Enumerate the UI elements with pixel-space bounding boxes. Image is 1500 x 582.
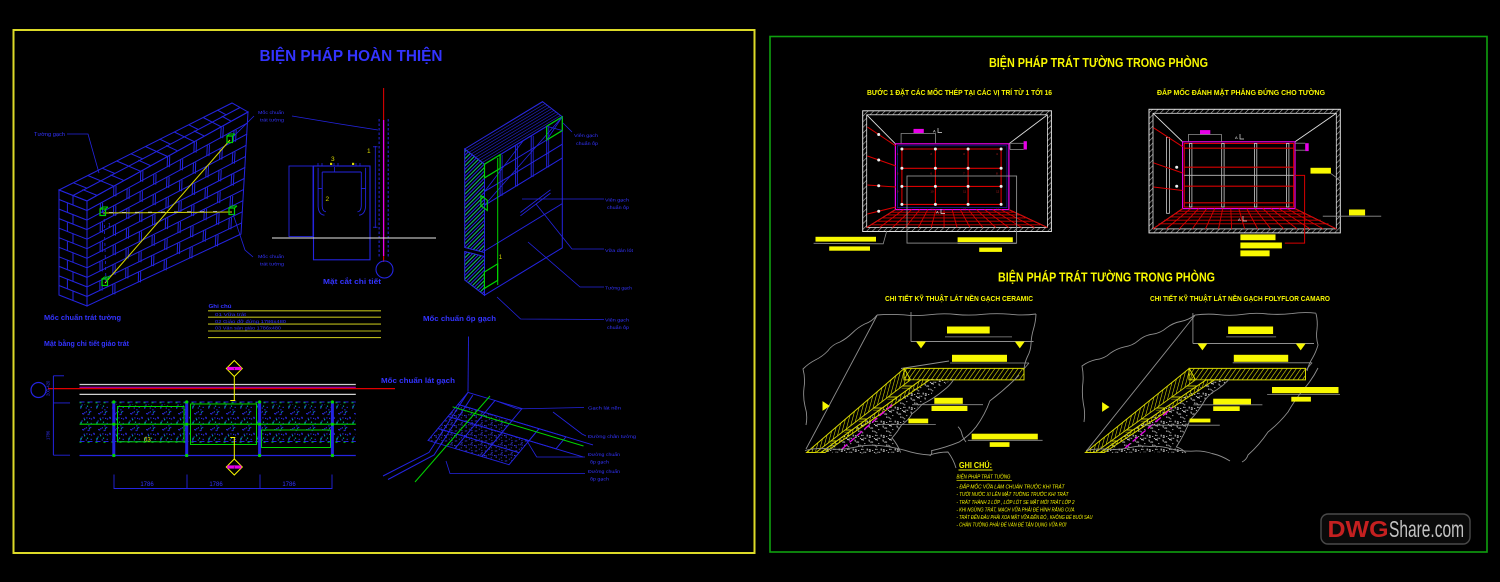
svg-text:trát tường: trát tường [260,118,284,124]
svg-text:BIỆN PHÁP HOÀN THIỆN: BIỆN PHÁP HOÀN THIỆN [260,47,443,65]
svg-text:1: 1 [367,148,371,155]
svg-text:BIỆN PHÁP TRÁT TƯỜNG: BIỆN PHÁP TRÁT TƯỜNG [957,473,1012,481]
svg-text:- TRÁT THÀNH 2 LỚP , LỚP LÓT S: - TRÁT THÀNH 2 LỚP , LỚP LÓT SE MẶT MỚI … [957,499,1075,506]
svg-text:A: A [933,129,936,134]
svg-text:Đường chuẩn: Đường chuẩn [588,451,620,458]
svg-text:Share.com: Share.com [1389,516,1464,542]
svg-text:CHI TIẾT KỸ THUẬT LÁT NỀN GẠCH: CHI TIẾT KỸ THUẬT LÁT NỀN GẠCH FOLYFLOR … [1150,293,1331,303]
svg-text:3: 3 [331,156,335,163]
svg-text:03: 03 [144,438,151,444]
svg-text:Mốc chuẩn trát tường: Mốc chuẩn trát tường [44,314,121,322]
svg-text:9: 9 [897,189,899,193]
svg-text:Tường gạch: Tường gạch [34,132,65,138]
svg-text:ốp gạch: ốp gạch [590,460,609,466]
svg-text:chuẩn ốp: chuẩn ốp [576,140,598,147]
svg-text:6: 6 [930,171,932,175]
svg-text:1: 1 [897,152,899,156]
svg-text:trát tường: trát tường [260,262,284,268]
svg-text:03 Ván sàn giáo 1786x480: 03 Ván sàn giáo 1786x480 [215,326,282,331]
svg-text:Mặt cắt chi tiết: Mặt cắt chi tiết [323,277,382,286]
svg-text:Mốc chuẩn: Mốc chuẩn [258,109,284,116]
svg-text:13: 13 [897,207,901,211]
svg-text:Đường chân tường: Đường chân tường [588,434,636,440]
svg-text:7: 7 [963,171,965,175]
svg-text:BƯỚC 1 ĐẶT CÁC MỐC THÉP TẠI CÁ: BƯỚC 1 ĐẶT CÁC MỐC THÉP TẠI CÁC VỊ TRÍ T… [867,87,1052,97]
svg-text:BIỆN PHÁP TRÁT TƯỜNG TRONG PHÒ: BIỆN PHÁP TRÁT TƯỜNG TRONG PHÒNG [998,270,1215,285]
svg-text:Mặt bằng chi tiết giáo trát: Mặt bằng chi tiết giáo trát [44,339,130,348]
svg-text:Mốc chuẩn: Mốc chuẩn [258,253,284,260]
svg-text:Viên gạch: Viên gạch [605,318,629,324]
svg-text:3: 3 [963,152,965,156]
svg-text:1: 1 [108,223,111,229]
svg-text:12: 12 [996,189,1000,193]
svg-text:A: A [1238,217,1241,222]
svg-text:Ghi chú: Ghi chú [209,304,232,310]
svg-text:02 Giáo đỡ đứng 1786x480: 02 Giáo đỡ đứng 1786x480 [215,319,287,324]
svg-text:Viên gạch: Viên gạch [605,198,629,204]
svg-text:10: 10 [930,189,934,193]
svg-text:ốp gạch: ốp gạch [590,477,609,483]
svg-text:GHI CHÚ:: GHI CHÚ: [959,459,992,470]
svg-text:- TƯỚI NƯỚC XI LÊN MẶT TƯỜNG T: - TƯỚI NƯỚC XI LÊN MẶT TƯỜNG TRƯỚC KHI T… [957,490,1070,498]
svg-text:1786: 1786 [140,482,154,488]
svg-text:14: 14 [930,207,934,211]
svg-text:4: 4 [996,152,998,156]
svg-text:16: 16 [996,207,1000,211]
svg-text:- TRÁT ĐẾN ĐÂU PHẢI XOA MẶT VỮ: - TRÁT ĐẾN ĐÂU PHẢI XOA MẶT VỮA ĐẾN ĐÓ ,… [957,513,1093,521]
svg-text:chuẩn ốp: chuẩn ốp [607,324,629,331]
svg-text:- ĐẮP MỐC VỮA LÀM CHUẨN TRƯỚC: - ĐẮP MỐC VỮA LÀM CHUẨN TRƯỚC KHI TRÁT [957,483,1066,491]
svg-text:ĐẮP MỐC ĐÁNH MẶT PHẲNG ĐỨNG CH: ĐẮP MỐC ĐÁNH MẶT PHẲNG ĐỨNG CHO TƯỜNG [1157,87,1325,97]
svg-text:A: A [936,210,939,215]
svg-text:01 Vữa trát: 01 Vữa trát [215,312,247,317]
svg-text:chuẩn ốp: chuẩn ốp [607,204,629,211]
svg-text:8: 8 [996,171,998,175]
svg-text:Vữa dán lót: Vữa dán lót [605,248,634,254]
svg-text:- CHÂN TƯỜNG PHẢI ĐỂ VÁN ĐỂ TẬ: - CHÂN TƯỜNG PHẢI ĐỂ VÁN ĐỂ TẬN DỤNG VỮA… [957,522,1067,529]
svg-text:Viên gạch: Viên gạch [574,133,598,139]
svg-text:- KHI NGỪNG TRÁT, MẠCH VỮA PHẢ: - KHI NGỪNG TRÁT, MẠCH VỮA PHẢI ĐỂ HÌNH … [957,506,1075,513]
svg-text:1: 1 [499,255,503,261]
svg-text:Tường gạch: Tường gạch [605,286,632,292]
svg-text:200-420: 200-420 [46,380,51,396]
svg-text:11: 11 [963,189,966,193]
svg-text:DWG: DWG [1328,516,1389,542]
svg-text:5: 5 [897,171,899,175]
svg-text:Đường chuẩn: Đường chuẩn [588,468,620,475]
svg-text:Mốc chuẩn lát gạch: Mốc chuẩn lát gạch [381,377,455,385]
svg-text:A: A [1235,135,1238,140]
svg-text:Gạch lát nền: Gạch lát nền [588,406,621,412]
svg-text:1786: 1786 [209,482,223,488]
svg-text:2: 2 [326,196,330,203]
svg-text:BIỆN PHÁP TRÁT TƯỜNG TRONG PHÒ: BIỆN PHÁP TRÁT TƯỜNG TRONG PHÒNG [989,55,1208,70]
svg-text:CHI TIẾT KỸ THUẬT LÁT NỀN GẠCH: CHI TIẾT KỸ THUẬT LÁT NỀN GẠCH CERAMIC [885,293,1033,303]
svg-text:1786: 1786 [46,430,51,440]
svg-text:Mốc chuẩn ốp gạch: Mốc chuẩn ốp gạch [423,315,496,323]
svg-text:1786: 1786 [282,482,296,488]
svg-text:2: 2 [930,152,932,156]
svg-text:15: 15 [963,207,967,211]
